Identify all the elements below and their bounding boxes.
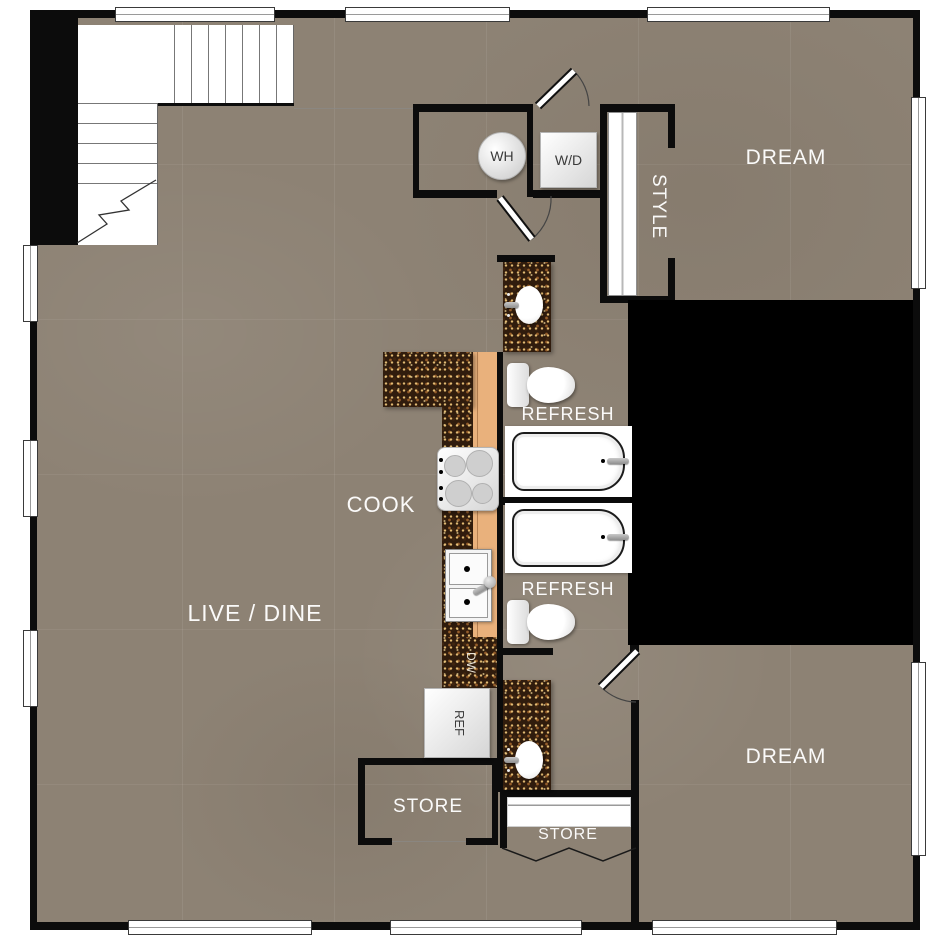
stair-run-left [78,103,158,203]
store-opening-line [392,841,466,842]
handle-icon [507,769,510,772]
store-closet-label: STORE [528,826,608,844]
stair-break-area [78,203,158,245]
burner-icon [472,483,493,504]
refrigerator-label: REF [445,700,467,746]
stove-knob-icon [439,497,443,501]
dishwasher-label: DW [458,643,478,683]
wall-store-right [492,758,498,845]
drain-icon [464,599,470,605]
faucet-knob-icon [484,576,496,588]
window [345,7,510,22]
window [647,7,830,22]
vanity-sink [515,286,543,324]
vanity-faucet-icon [504,302,519,308]
window [911,662,926,856]
stove-knob-icon [439,486,443,490]
live-dine-label: LIVE / DINE [170,600,340,627]
stair-wall-block [36,14,78,245]
window [911,97,926,289]
wall-closet-top [500,790,638,797]
wall-style-right-upper [668,104,675,148]
stove-knob-icon [439,470,443,474]
window [390,920,582,935]
tub-faucet-icon [607,458,629,464]
handle-icon [507,293,510,296]
wall-dream2-west [631,700,639,923]
wall-store-top [358,758,498,765]
wall-laundry-bottom-right [533,190,607,198]
drain-icon [464,566,470,572]
handle-icon [507,314,510,317]
toilet-tank [507,600,529,644]
water-heater-label: WH [478,148,526,164]
wall-door-post [630,645,639,655]
washer-dryer-label: W/D [540,152,597,168]
window [23,245,38,322]
wall-bath2-bottom [503,648,553,655]
wall-laundry-left [413,104,419,197]
closet-shelf [507,797,631,827]
opening-line [294,108,413,109]
handle-icon [507,748,510,751]
dream-top-label: DREAM [736,146,836,170]
toilet-tank [507,363,529,407]
style-label: STYLE [641,162,669,252]
store-room-label: STORE [388,796,468,820]
tub-drain-icon [601,459,605,463]
burner-icon [444,455,466,477]
burner-icon [466,450,493,477]
wall-style-top [600,104,675,112]
wall-closet-left [500,790,507,848]
window [23,440,38,517]
stair-landing [78,25,158,103]
refresh-bottom-label: REFRESH [518,579,618,600]
burner-icon [445,480,472,507]
window [652,920,837,935]
wall-store-bottom-a [358,838,392,845]
cook-label: COOK [345,492,417,518]
window [23,630,38,707]
stair-run-edge [158,103,294,106]
wall-vanity-top [497,255,555,262]
floor-plan: STYLE STORE STORE DW REF WH W/D [0,0,950,950]
stove-knob-icon [439,458,443,462]
wall-store-left [358,758,365,845]
wall-laundry-bottom-left [413,190,497,198]
window [115,7,275,22]
stair-run-top [158,25,294,105]
vanity-faucet-icon [504,757,519,763]
void-open-area [628,300,913,645]
wall-laundry-top [413,104,533,112]
style-sliding-door [608,112,637,296]
tub-faucet-icon [607,534,629,540]
dream-bottom-label: DREAM [736,745,836,769]
tub-drain-icon [601,535,605,539]
wall-style-left [600,104,607,303]
wall-laundry-divider [527,104,533,197]
window [128,920,312,935]
refresh-top-label: REFRESH [518,404,618,425]
vanity-sink [515,741,543,779]
